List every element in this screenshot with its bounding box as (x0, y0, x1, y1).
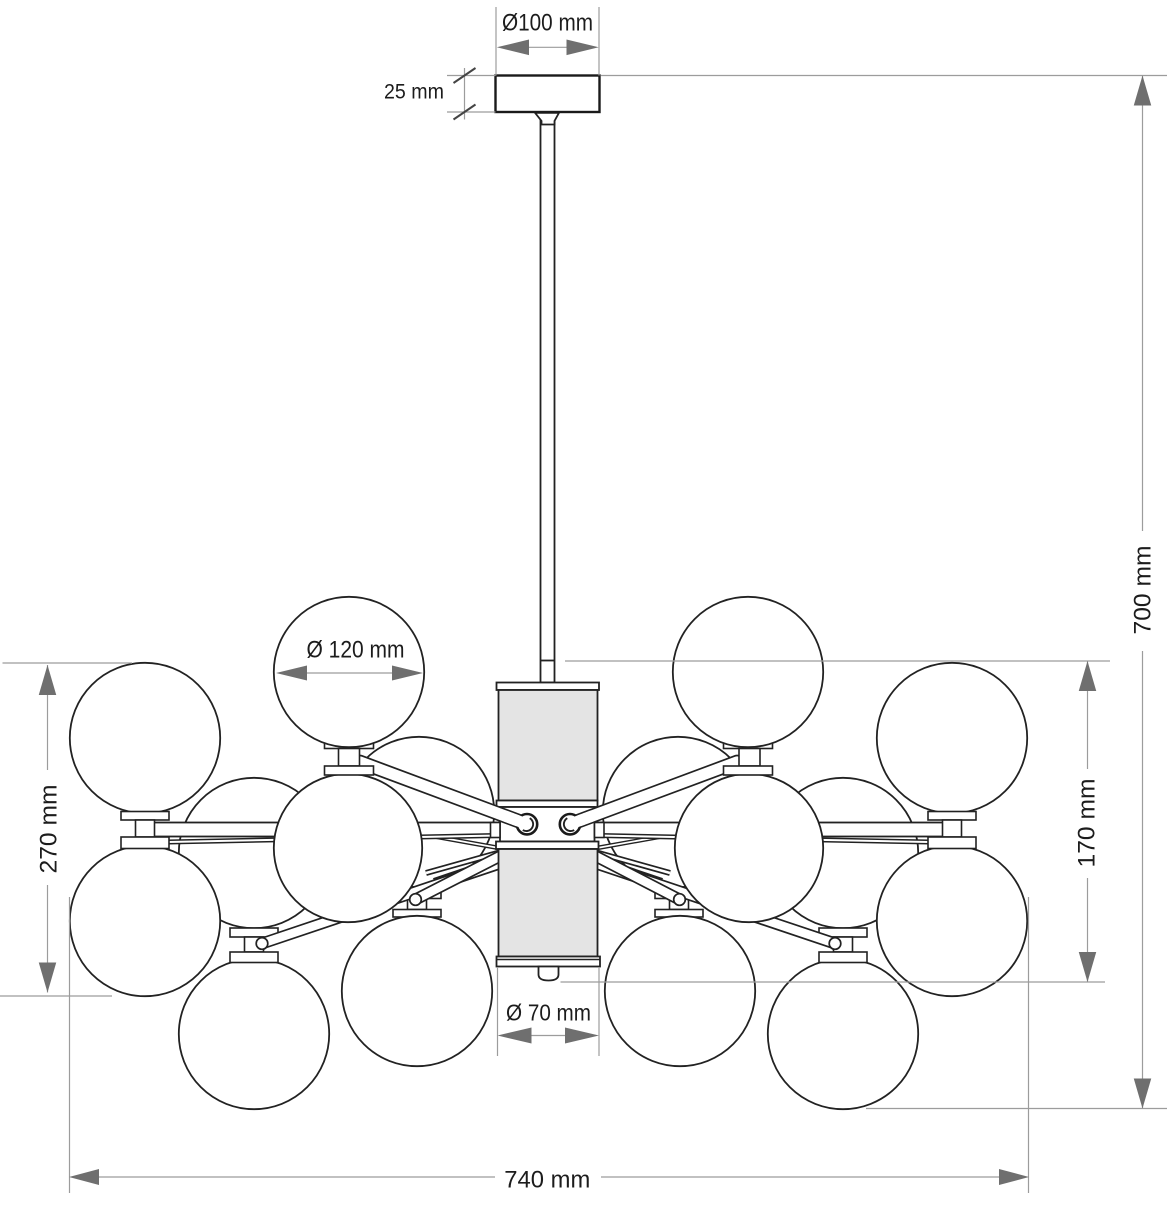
svg-text:Ø 120 mm: Ø 120 mm (307, 637, 405, 664)
svg-text:170 mm: 170 mm (1074, 779, 1101, 868)
svg-text:270 mm: 270 mm (36, 785, 63, 874)
svg-text:740 mm: 740 mm (504, 1167, 590, 1194)
svg-text:Ø 70 mm: Ø 70 mm (506, 1000, 591, 1026)
svg-text:700 mm: 700 mm (1130, 546, 1157, 635)
svg-text:Ø100 mm: Ø100 mm (502, 10, 593, 37)
svg-text:25 mm: 25 mm (384, 80, 444, 104)
